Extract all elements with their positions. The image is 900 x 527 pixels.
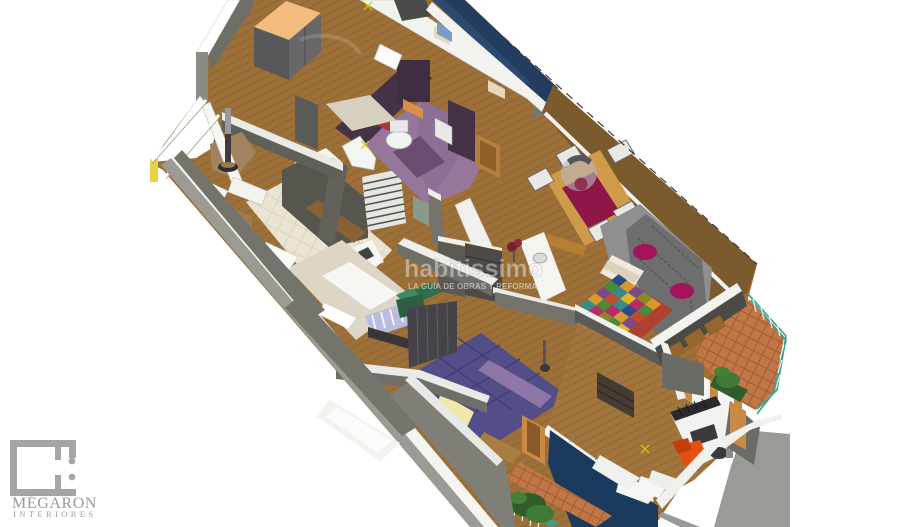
svg-text:LA GUÍA DE OBRAS Y REFORMAS: LA GUÍA DE OBRAS Y REFORMAS <box>408 282 543 291</box>
svg-text:habitissimo: habitissimo <box>404 255 543 283</box>
svg-text:INTERIORES: INTERIORES <box>13 509 97 519</box>
